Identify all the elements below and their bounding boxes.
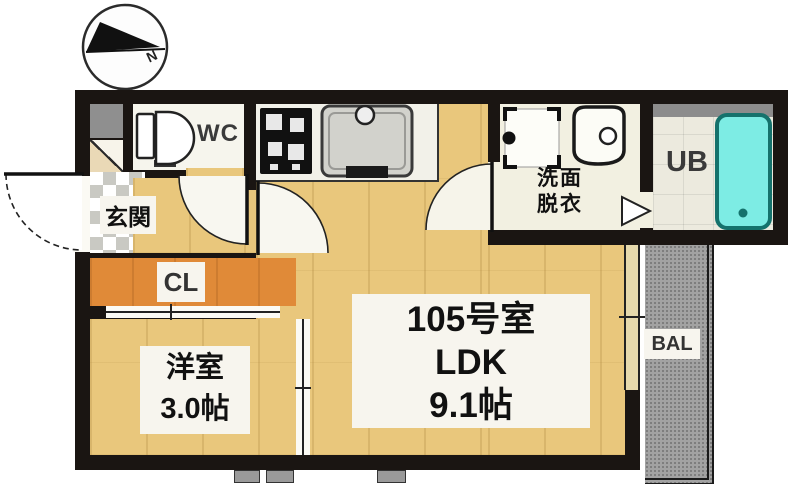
- ldk-room-label: 105号室 LDK 9.1帖: [352, 294, 590, 428]
- hall-ldk-opening: [244, 190, 256, 253]
- washroom-room-label: 洗面 脱衣: [518, 166, 602, 218]
- washing-machine-icon: [501, 105, 563, 171]
- ldk-layout: LDK: [352, 341, 590, 384]
- western-room-name: 洋室: [140, 348, 250, 389]
- bathtub-icon: [714, 112, 774, 232]
- washbasin-icon: [564, 102, 632, 172]
- front-door-opening: [73, 176, 90, 252]
- front-door-arc: [6, 174, 82, 250]
- wc-room-label: WC: [188, 120, 248, 148]
- shoe-cabinet: [90, 140, 123, 172]
- ldk-size: 9.1帖: [352, 384, 590, 427]
- stove-icon: [258, 106, 314, 176]
- washroom-label-line1: 洗面: [518, 166, 602, 192]
- compass-icon: N: [76, 0, 176, 96]
- bottom-vent-tab: [266, 470, 294, 483]
- washroom-label-line2: 脱衣: [518, 192, 602, 218]
- front-door-swing: [6, 174, 82, 250]
- ub-door-opening: [640, 192, 653, 228]
- pipe-shaft: [90, 104, 123, 138]
- bottom-vent-tab: [234, 470, 260, 483]
- western-room-label: 洋室 3.0帖: [140, 346, 250, 434]
- unit-bath-room-label: UB: [660, 146, 714, 179]
- balcony-floor: [645, 245, 714, 484]
- floor-plan: N: [0, 0, 800, 484]
- balcony-room-label: BAL: [644, 329, 700, 359]
- entrance-room-label: 玄関: [100, 196, 156, 234]
- ldk-room-number: 105号室: [352, 298, 590, 341]
- washroom-door-opening: [488, 162, 500, 230]
- sink-icon: [318, 102, 418, 182]
- bottom-vent-tab: [377, 470, 406, 483]
- western-room-size: 3.0帖: [140, 389, 250, 430]
- closet-room-label: CL: [157, 262, 205, 302]
